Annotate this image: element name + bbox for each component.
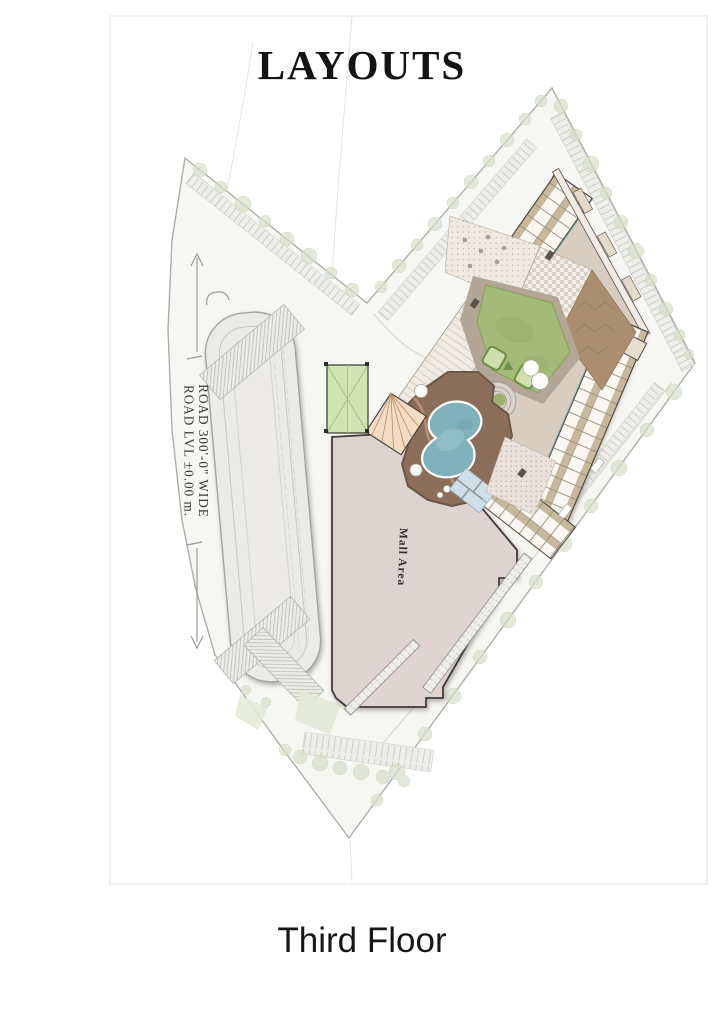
contour-line <box>350 840 352 882</box>
contour-line <box>331 16 352 308</box>
mall-label: Mall Area <box>395 528 409 587</box>
contour-line <box>224 42 253 206</box>
road-label-line1: ROAD 300'-0" WIDE <box>196 384 211 518</box>
road-label: ROAD 300'-0" WIDE ROAD LVL ±0.00 m. <box>182 384 212 518</box>
multipurpose-court <box>324 362 369 433</box>
floor-caption: Third Floor <box>0 921 724 961</box>
road-label-line2: ROAD LVL ±0.00 m. <box>182 385 197 517</box>
site-plan: ROAD 300'-0" WIDE ROAD LVL ±0.00 m. Mall… <box>0 0 724 1024</box>
